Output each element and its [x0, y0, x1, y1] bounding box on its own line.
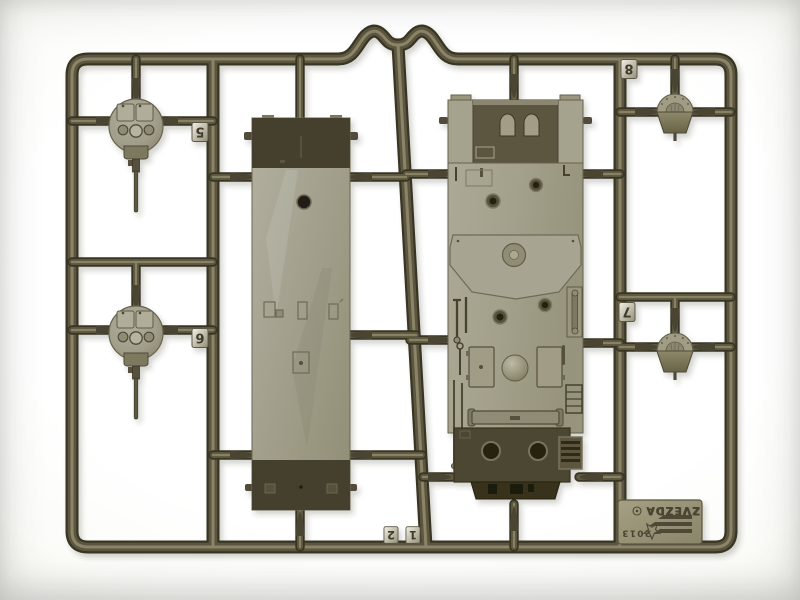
tag-part-6: 6	[192, 329, 208, 348]
hull-plate-part	[244, 115, 358, 510]
tag-8-label: 8	[624, 61, 633, 76]
tag-part-7: 7	[619, 303, 635, 322]
tag-7-label: 7	[622, 304, 631, 319]
brand-tab: ZVEZDA ZVEZDA 2013	[618, 500, 702, 544]
lower-hull-part	[439, 95, 592, 499]
tag-1-label: 1	[409, 528, 417, 542]
tag-part-1: 1	[406, 527, 420, 544]
tag-6-label: 6	[195, 330, 204, 345]
turret-part-6	[109, 306, 163, 419]
tag-part-2: 2	[384, 527, 398, 544]
cupola-part-7	[657, 333, 693, 380]
cupola-part-8	[657, 94, 693, 141]
sprue-svg: 5 6 7 8 1 2 ZVEZDA ZVEZDA	[0, 0, 800, 600]
mold-year: 2013	[621, 528, 651, 538]
tag-part-5: 5	[192, 123, 208, 142]
sprue-photo: 5 6 7 8 1 2 ZVEZDA ZVEZDA	[0, 0, 800, 600]
brand-name: ZVEZDA	[646, 505, 701, 517]
tag-5-label: 5	[195, 124, 204, 139]
tag-part-8: 8	[621, 60, 637, 79]
tag-2-label: 2	[387, 528, 395, 542]
hull-rear-section	[454, 428, 582, 499]
turret-part-5	[109, 99, 163, 212]
